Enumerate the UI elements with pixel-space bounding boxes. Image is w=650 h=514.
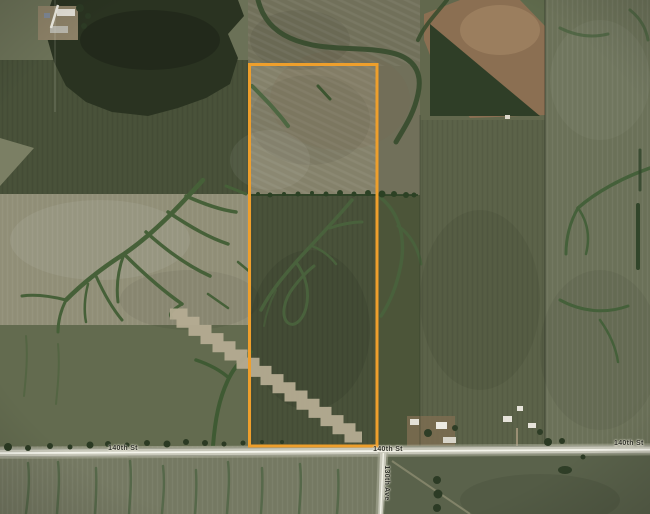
map-viewport[interactable]: 140th St 140th St 140th St 130th Ave	[0, 0, 650, 514]
satellite-imagery	[0, 0, 650, 514]
vignette-overlay	[0, 0, 650, 514]
